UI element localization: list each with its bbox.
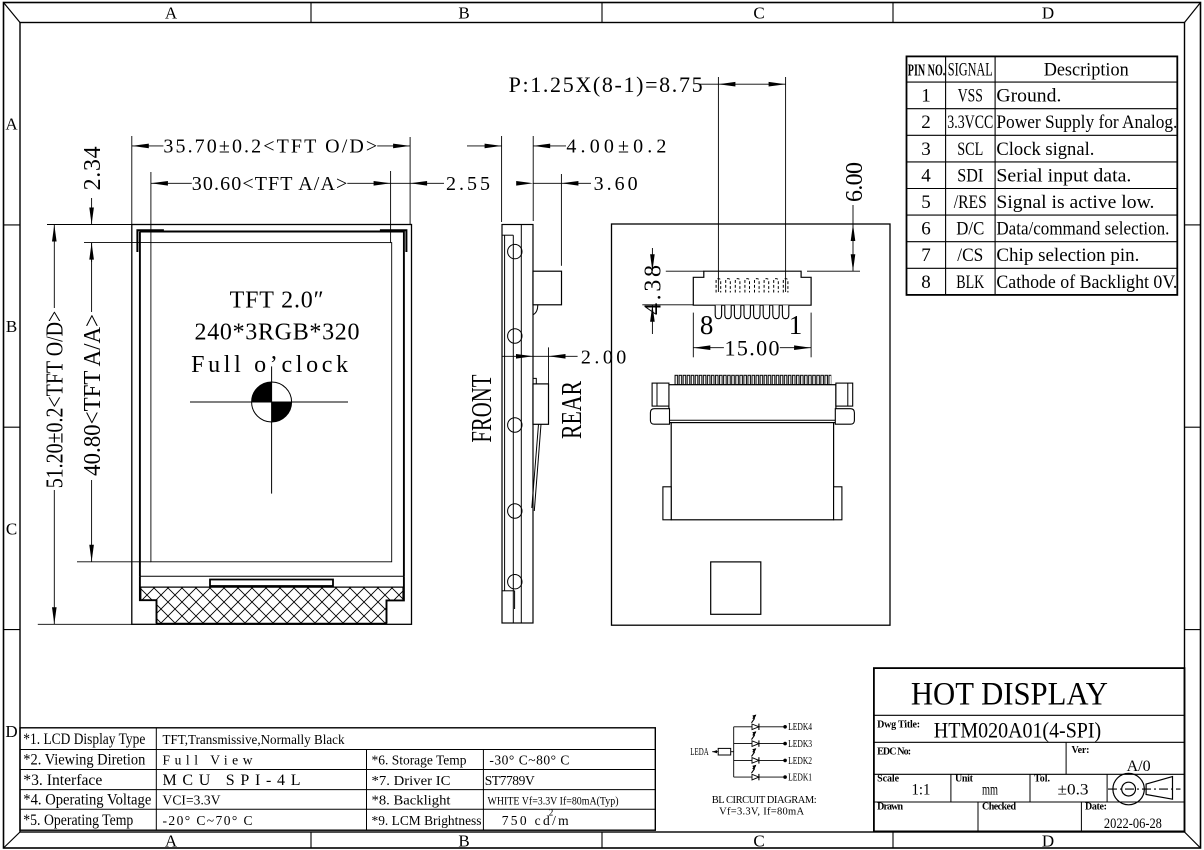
svg-text:C: C [6, 519, 17, 538]
svg-text:LEDK1: LEDK1 [788, 773, 812, 784]
svg-text:B: B [458, 4, 469, 23]
svg-text:A: A [165, 4, 178, 23]
svg-text:SIGNAL: SIGNAL [948, 60, 993, 81]
svg-text:15.00: 15.00 [725, 335, 780, 360]
svg-text:1:1: 1:1 [912, 781, 931, 798]
svg-text:Serial input data.: Serial input data. [996, 165, 1131, 186]
svg-text:FRONT: FRONT [467, 375, 498, 443]
svg-text:LEDK2: LEDK2 [788, 756, 812, 767]
svg-text:Data/command selection.: Data/command selection. [996, 219, 1169, 240]
svg-text:A: A [5, 115, 18, 134]
svg-text:2.00: 2.00 [581, 347, 626, 369]
svg-text:A: A [165, 832, 178, 850]
svg-text:SCL: SCL [957, 139, 983, 160]
svg-text:HOT DISPLAY: HOT DISPLAY [911, 677, 1108, 713]
svg-text:HTM020A01(4-SPI): HTM020A01(4-SPI) [934, 718, 1101, 743]
svg-text:Scale: Scale [877, 774, 900, 785]
svg-text:LEDK3: LEDK3 [788, 739, 812, 750]
svg-text:2.55: 2.55 [446, 173, 490, 195]
svg-text:*8. Backlight: *8. Backlight [372, 793, 451, 808]
svg-text:Chip selection pin.: Chip selection pin. [996, 245, 1139, 266]
svg-text:C: C [753, 832, 764, 850]
svg-text:Ground.: Ground. [996, 86, 1061, 107]
svg-text:35.70±0.2<TFT O/D>: 35.70±0.2<TFT O/D> [163, 135, 377, 157]
svg-text:2: 2 [549, 808, 554, 818]
svg-text:*9. LCM Brightness: *9. LCM Brightness [372, 813, 482, 828]
svg-text:3: 3 [921, 139, 931, 160]
svg-text:Description: Description [1044, 60, 1129, 81]
svg-text:*3. Interface: *3. Interface [23, 772, 102, 789]
svg-text:*7. Driver IC: *7. Driver IC [372, 773, 451, 788]
svg-text:TFT,Transmissive,Normally Blac: TFT,Transmissive,Normally Black [163, 732, 345, 747]
svg-text:2.34: 2.34 [80, 146, 106, 190]
svg-text:*5. Operating Temp: *5. Operating Temp [23, 812, 133, 829]
svg-text:Vf=3.3V, If=80mA: Vf=3.3V, If=80mA [719, 806, 804, 817]
svg-text:TFT 2.0″: TFT 2.0″ [230, 288, 324, 314]
svg-text:*2. Viewing Diretion: *2. Viewing Diretion [23, 752, 145, 769]
svg-text:30.60<TFT A/A>: 30.60<TFT A/A> [192, 173, 347, 195]
svg-text:7: 7 [921, 245, 931, 266]
svg-text:Cathode of Backlight 0V.: Cathode of Backlight 0V. [996, 272, 1177, 293]
svg-text:6.00: 6.00 [842, 162, 868, 202]
svg-text:2: 2 [921, 112, 931, 133]
svg-text:REAR: REAR [557, 381, 588, 439]
svg-text:Power Supply for Analog.: Power Supply for Analog. [996, 112, 1177, 133]
svg-text:-20° C~70° C: -20° C~70° C [163, 813, 253, 828]
svg-text:*4. Operating Voltage: *4. Operating Voltage [23, 792, 151, 809]
svg-text:3.60: 3.60 [594, 173, 638, 195]
svg-text:VCI=3.3V: VCI=3.3V [163, 793, 221, 808]
svg-text:Unit: Unit [955, 774, 974, 785]
svg-text:2022-06-28: 2022-06-28 [1104, 816, 1162, 832]
svg-text:/CS: /CS [957, 245, 983, 266]
svg-text:6: 6 [921, 219, 931, 240]
svg-text:ST7789V: ST7789V [485, 773, 535, 788]
svg-text:-30° C~80° C: -30° C~80° C [489, 753, 569, 768]
svg-text:D/C: D/C [956, 219, 984, 240]
svg-text:PIN NO.: PIN NO. [908, 61, 946, 80]
svg-text:1: 1 [789, 310, 803, 340]
svg-text:EDC No:: EDC No: [877, 747, 911, 758]
svg-text:40.80<TFT A/A>: 40.80<TFT A/A> [80, 314, 106, 476]
svg-text:Tol.: Tol. [1034, 774, 1051, 785]
svg-text:P:1.25X(8-1)=8.75: P:1.25X(8-1)=8.75 [509, 72, 703, 97]
svg-text:B: B [6, 317, 17, 336]
svg-text:Checked: Checked [982, 802, 1016, 813]
svg-text:Full o’clock: Full o’clock [191, 352, 348, 378]
svg-text:LEDK4: LEDK4 [788, 722, 812, 733]
svg-text:WHITE Vf=3.3V If=80mA(Typ): WHITE Vf=3.3V If=80mA(Typ) [488, 794, 619, 808]
svg-text:51.20±0.2<TFT O/D>: 51.20±0.2<TFT O/D> [43, 311, 69, 489]
svg-text:VSS: VSS [958, 86, 983, 107]
svg-text:Dwg Title:: Dwg Title: [877, 720, 920, 731]
svg-text:Signal is active low.: Signal is active low. [996, 192, 1154, 213]
svg-text:8: 8 [700, 310, 714, 340]
svg-text:*6. Storage Temp: *6. Storage Temp [372, 753, 467, 768]
svg-text:Ver:: Ver: [1072, 745, 1090, 756]
svg-text:*1. LCD Display Type: *1. LCD Display Type [23, 731, 145, 748]
svg-text:±0.3: ±0.3 [1058, 781, 1089, 798]
svg-text:mm: mm [982, 781, 998, 798]
svg-text:1: 1 [921, 86, 931, 107]
svg-text:A/0: A/0 [1127, 758, 1151, 775]
svg-text:5: 5 [921, 192, 931, 213]
svg-text:B: B [458, 832, 469, 850]
svg-text:BLK: BLK [956, 272, 984, 293]
svg-text:3.3VCC: 3.3VCC [947, 112, 993, 133]
svg-text:Clock signal.: Clock signal. [996, 139, 1094, 160]
svg-text:750 cd/m: 750 cd/m [502, 813, 569, 828]
svg-text:240*3RGB*320: 240*3RGB*320 [195, 319, 360, 345]
svg-text:4.38: 4.38 [641, 265, 667, 315]
svg-text:SDI: SDI [957, 165, 983, 186]
svg-text:MCU SPI-4L: MCU SPI-4L [163, 772, 301, 789]
svg-text:Date:: Date: [1085, 802, 1107, 813]
svg-text:D: D [1042, 4, 1054, 23]
svg-text:Drawn: Drawn [877, 802, 903, 813]
svg-text:BL CIRCUIT DIAGRAM:: BL CIRCUIT DIAGRAM: [712, 795, 817, 806]
svg-text:8: 8 [921, 272, 931, 293]
svg-text:D: D [5, 722, 17, 741]
svg-text:C: C [753, 4, 764, 23]
svg-text:D: D [1042, 832, 1054, 850]
svg-text:/RES: /RES [954, 192, 987, 213]
svg-text:4: 4 [921, 165, 931, 186]
svg-text:LEDA: LEDA [690, 747, 709, 758]
